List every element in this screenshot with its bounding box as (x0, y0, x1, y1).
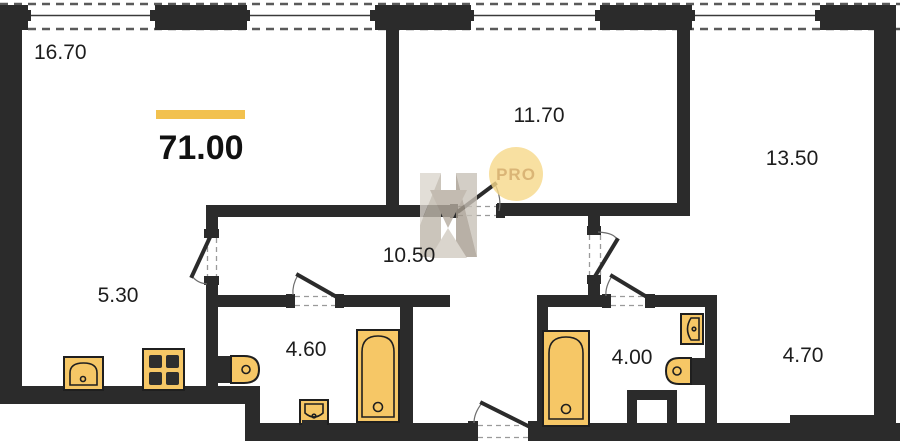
bottom-left-wall (0, 386, 258, 404)
room-area-label-dressing: 4.70 (783, 344, 824, 367)
bathtub-icon-bathroom1 (357, 330, 399, 422)
bathroom1-right-wall (400, 307, 413, 427)
washbasin-icon-bathroom1 (300, 400, 328, 434)
wall-pier (155, 5, 247, 30)
room-area-label-bathroom1: 4.60 (286, 338, 327, 361)
door-bathroom2 (602, 276, 655, 308)
total-area-label: 71.00 (158, 129, 243, 167)
hall-top-wall (208, 205, 452, 217)
corner-washbasin-icon-bathroom2 (681, 314, 703, 344)
door-living (192, 229, 219, 285)
right-exterior-wall (874, 5, 896, 441)
hall-left-wall-lower (206, 278, 218, 390)
room-area-label-living: 16.70 (34, 41, 87, 64)
hall-bottom-wall-c (537, 295, 603, 307)
hall-bottom-wall-a (206, 295, 287, 307)
kitchen-sink-icon (64, 357, 103, 390)
bathtub-icon-bathroom2 (543, 331, 589, 426)
room-area-label-bedroom1: 11.70 (514, 104, 565, 127)
room-area-label-bedroom2: 13.50 (766, 147, 819, 170)
pro-badge: PRO (489, 147, 543, 201)
vent-shaft (627, 390, 677, 427)
room-area-label-bathroom2: 4.00 (612, 346, 653, 369)
hall-bottom-wall-b (343, 295, 450, 307)
wall-bedroom2-left (677, 5, 690, 216)
brand-watermark: PRO (420, 147, 543, 258)
floor-plan: PRO 71.00 16.70 11.70 13.50 10.50 5.30 4… (0, 0, 900, 441)
total-area-accent-bar (156, 110, 245, 119)
bathroom2-right-wall (705, 295, 717, 427)
room-area-label-hall: 10.50 (383, 244, 436, 267)
floor-plan-drawing: PRO 71.00 16.70 11.70 13.50 10.50 5.30 4… (0, 0, 900, 441)
door-bathroom1 (286, 275, 344, 308)
room-area-label-kitchen: 5.30 (98, 284, 139, 307)
door-entrance (468, 403, 537, 441)
left-exterior-wall (0, 5, 22, 390)
fixtures (64, 314, 705, 434)
stove-icon (143, 349, 184, 390)
pro-badge-label: PRO (496, 165, 536, 184)
bottom-sill-step (790, 415, 883, 429)
toilet-icon-bathroom1 (218, 356, 259, 383)
wall-living-bedroom1 (386, 5, 399, 217)
toilet-icon-bathroom2 (666, 358, 705, 385)
